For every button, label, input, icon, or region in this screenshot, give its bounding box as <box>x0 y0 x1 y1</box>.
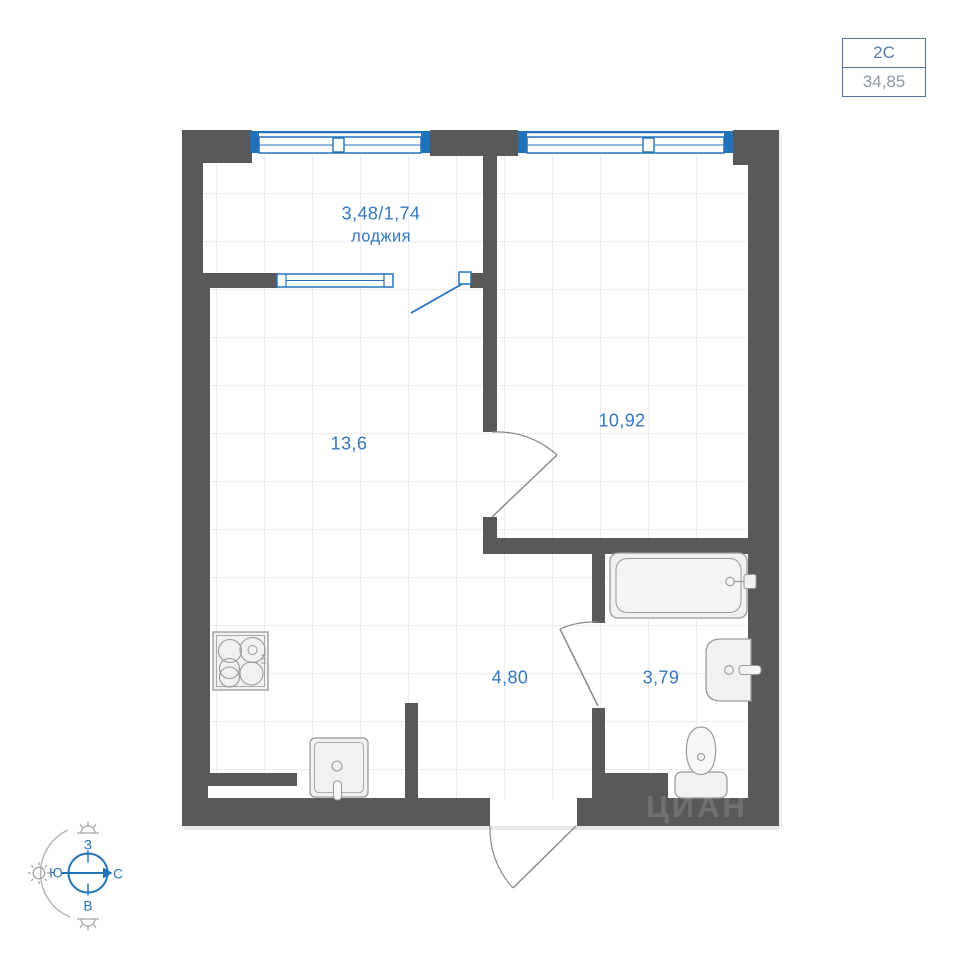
bathroom-door-leaf <box>560 629 598 706</box>
room-label-bathroom-area: 3,79 <box>643 668 680 689</box>
entrance-door <box>490 826 576 888</box>
wall-divider-stub <box>483 517 497 540</box>
room-label-living-area: 13,6 <box>331 434 368 455</box>
loggia-door <box>411 272 471 313</box>
wall-kitchen-stub <box>405 703 418 798</box>
wall-bathroom-left-upper <box>592 554 605 623</box>
compass-label-west: З <box>84 838 92 853</box>
window-cap <box>250 131 259 153</box>
toilet-bowl <box>686 727 715 775</box>
wall-bathroom-stub <box>605 773 668 798</box>
wall-loggia-left <box>203 273 277 288</box>
wall-bathroom-left-lower <box>592 708 605 798</box>
toilet-tank <box>675 772 727 798</box>
wall-kitchen-niche-bar <box>208 773 297 786</box>
bathtub-tap <box>744 575 756 589</box>
room-label-hall-area: 4,80 <box>492 668 529 689</box>
unit-card: 2С 34,85 <box>842 38 926 97</box>
wall-left-lower <box>182 273 210 826</box>
unit-area-cell: 34,85 <box>843 68 925 96</box>
window-mullion <box>643 138 654 152</box>
wall-bathroom-top <box>483 538 748 554</box>
room-label-loggia-name: лоджия <box>351 228 411 247</box>
wall-top-right-pier <box>733 130 749 165</box>
walls <box>182 130 779 826</box>
toilet-icon <box>675 727 727 798</box>
room-label-bedroom-area: 10,92 <box>598 411 645 432</box>
window-cap <box>421 131 430 153</box>
compass-label-south: Ю <box>49 866 63 881</box>
kitchen-niche-gap <box>208 786 297 798</box>
sun-rise-icon <box>77 822 99 833</box>
bathtub-faucet <box>726 577 734 585</box>
sink-tap <box>334 781 342 800</box>
window-loggia-exterior <box>250 131 430 153</box>
wall-left-upper <box>182 130 203 275</box>
window-bedroom-exterior <box>518 131 733 153</box>
kitchen-sink-icon <box>310 738 368 800</box>
entrance-door-leaf <box>513 826 576 888</box>
wall-shadow-bottom <box>184 826 779 830</box>
wall-bottom-left <box>182 798 490 826</box>
wall-divider <box>483 130 497 432</box>
sun-icon <box>28 862 50 884</box>
bedroom-door <box>492 432 557 517</box>
wall-right <box>748 130 779 826</box>
window-mullion <box>333 138 344 152</box>
loggia-door-leaf <box>411 284 462 313</box>
compass-label-north: С <box>113 867 123 882</box>
compass-rose <box>28 822 113 930</box>
loggia-door-hinge <box>459 272 471 284</box>
wall-bottom-right <box>577 798 779 826</box>
compass-label-east: В <box>83 899 92 914</box>
wall-top-mid <box>430 130 518 156</box>
bathroom-door <box>560 622 598 706</box>
entrance-door-arc <box>490 826 513 888</box>
bedroom-door-arc <box>492 432 557 455</box>
window-cap <box>518 131 527 153</box>
washbasin-tap <box>739 666 761 675</box>
stove-icon <box>213 632 268 690</box>
unit-type-cell: 2С <box>843 39 925 68</box>
floor-plan-drawing <box>0 0 960 960</box>
wall-shadow-right <box>779 133 782 828</box>
bathtub-icon <box>610 553 756 618</box>
room-label-loggia-area: 3,48/1,74 <box>342 204 421 225</box>
window-glass-line <box>518 131 733 133</box>
window-loggia-interior <box>277 274 393 287</box>
bedroom-door-leaf <box>492 455 557 517</box>
bathtub-inner <box>616 559 741 613</box>
window-glass-line <box>250 131 430 133</box>
window-cap <box>724 131 733 153</box>
sun-set-icon <box>77 919 99 930</box>
floor-plan-canvas: 3,48/1,74 лоджия 13,6 10,92 4,80 3,79 ЦИ… <box>0 0 960 960</box>
